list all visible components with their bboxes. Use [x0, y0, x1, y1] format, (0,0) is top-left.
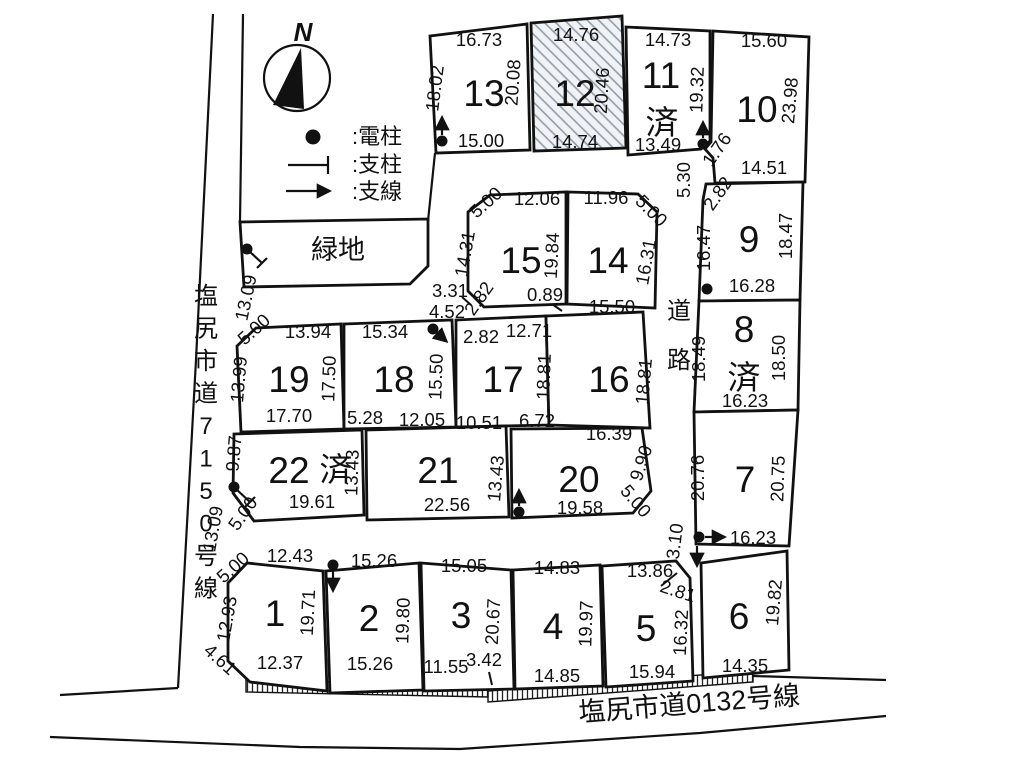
- lot-17-dim-bottom: 10.51: [456, 412, 502, 433]
- lot-3-dim-bottom: 11.55: [424, 656, 469, 677]
- lot-21-dim-right: 13.43: [483, 454, 508, 502]
- lot-17-dim-right: 18.81: [532, 353, 555, 400]
- lot-18-number: 18: [373, 359, 414, 400]
- legend-pole-icon: [306, 130, 321, 145]
- lot-1-dim-bottom: 12.37: [257, 652, 303, 673]
- lot-11-dim-right: 19.32: [685, 66, 708, 113]
- lot-11-dim-top: 14.73: [645, 29, 691, 50]
- road-dim-452: 4.52: [429, 301, 465, 322]
- lot-1-dim-top: 12.43: [267, 545, 313, 566]
- lot-4-dim-bottom: 14.85: [534, 665, 580, 686]
- lot-19-dim-top: 13.94: [285, 321, 331, 342]
- lot-17-dim-bottom2: 6.72: [519, 410, 555, 431]
- bottom-road-bottom-edge: [50, 716, 886, 749]
- lot-14-number: 14: [587, 240, 628, 281]
- pole-icon-lot21: [514, 507, 525, 518]
- legend-strut-label: :支柱: [352, 152, 402, 177]
- lot-17-dim-top: 12.71: [506, 320, 552, 341]
- lot-19-dim-left: 13.99: [226, 355, 251, 403]
- lot-4-number: 4: [543, 606, 564, 647]
- lot-18-dim-right: 15.50: [424, 353, 447, 400]
- lot-12-dim-bottom: 14.74: [552, 131, 598, 152]
- lot-12-dim-top: 14.76: [553, 24, 599, 45]
- pole-icon-lot7: [694, 532, 705, 543]
- lot-2-number: 2: [359, 598, 380, 639]
- lot-7-dim-left: 20.76: [687, 455, 708, 501]
- lot-18-dim-top: 15.34: [362, 321, 408, 342]
- road-dim-331: 3.31: [432, 280, 468, 301]
- bottom-road-top-edge-left: [60, 688, 178, 695]
- lot-13-dim-right: 20.08: [500, 59, 524, 107]
- legend: :電柱 :支柱 :支線: [286, 124, 402, 204]
- lot-21-dim-bottom: 22.56: [424, 494, 470, 515]
- lot-10-dim-right: 23.98: [777, 76, 802, 124]
- lot-19-dim-bottom: 17.70: [266, 405, 312, 426]
- lot-15-dim-right: 19.84: [540, 232, 563, 279]
- lot-4-dim-right: 19.97: [574, 600, 597, 647]
- lot-5-dim-right: 16.32: [669, 609, 692, 656]
- lot-22-dim-bottom: 19.61: [289, 491, 335, 512]
- plot-map-svg: N :電柱 :支柱 :支線: [0, 0, 1024, 768]
- lot-20-number: 20: [558, 459, 599, 500]
- lot-22-dim-left: 9.87: [221, 435, 245, 473]
- lot-15-dim-top: 12.06: [514, 188, 560, 209]
- lot-22-dim-right: 13.43: [340, 449, 363, 496]
- lot-17-number: 17: [482, 359, 523, 400]
- lot-9-dim-left: 16.47: [693, 225, 714, 271]
- pole-icon-lot9: [702, 284, 713, 295]
- compass-north-label: N: [294, 17, 314, 47]
- lot-3-dim-top: 15.05: [441, 555, 487, 576]
- legend-wire-label: :支線: [352, 179, 402, 204]
- lot-2-dim-right: 19.80: [391, 597, 414, 644]
- lot-13-dim-bottom: 15.00: [458, 130, 504, 151]
- left-road-east-edge-upper: [240, 14, 243, 222]
- lot-6-number: 6: [729, 596, 750, 637]
- lot-3-number: 3: [451, 595, 472, 636]
- lot-19-dim-right: 17.50: [317, 355, 340, 402]
- lot-21-number: 21: [417, 450, 458, 491]
- lot-16-number: 16: [588, 359, 629, 400]
- lot-16-dim-bottom: 16.39: [586, 423, 632, 444]
- lot-19-number: 19: [268, 359, 309, 400]
- lot-8-dim-left: 18.49: [688, 336, 709, 382]
- lot-5-dim-bottom: 15.94: [629, 661, 675, 682]
- lot-20-dim-bottom: 19.58: [557, 497, 603, 518]
- green-space-label: 緑地: [311, 235, 365, 265]
- corridor-west-edge: [428, 153, 435, 221]
- lot-6-dim-right: 19.82: [761, 578, 786, 626]
- lot-8-dim-right: 18.50: [768, 335, 789, 381]
- lot-10-dim-top: 15.60: [741, 30, 787, 51]
- lot-13-dim-top: 16.73: [456, 29, 502, 50]
- lot-5-number: 5: [636, 608, 657, 649]
- lot-14-dim-top: 11.96: [584, 187, 629, 208]
- lot-7-dim-frontage: 16.23: [730, 527, 776, 548]
- lot-9-dim-bottom: 16.28: [729, 275, 775, 296]
- lot-22-number: 22: [268, 450, 309, 491]
- lot-9-number: 9: [739, 219, 760, 260]
- legend-pole-label: :電柱: [352, 124, 402, 149]
- lot-1-dim-right: 19.71: [296, 589, 319, 636]
- lot-12-dim-right: 20.46: [590, 67, 613, 114]
- lot-11-dim-bottom: 13.49: [635, 134, 681, 155]
- lot-9-dim-right: 18.47: [775, 213, 796, 259]
- lot-8-number: 8: [734, 309, 755, 350]
- subdivision-plan: N :電柱 :支柱 :支線: [0, 0, 1024, 768]
- lot-10-number: 10: [736, 89, 777, 130]
- lot-8-dim-bottom: 16.23: [722, 390, 768, 411]
- road-dim-530: 5.30: [673, 162, 694, 198]
- road-dim-310: 3.10: [662, 522, 687, 560]
- lot-13-number: 13: [463, 73, 504, 114]
- lot-11-number: 11: [642, 55, 680, 96]
- lot-15-dim-step: 0.89: [527, 284, 563, 305]
- lot-3-dim-right: 20.67: [481, 598, 504, 645]
- lot-18-dim-bottom: 5.28: [347, 407, 383, 428]
- lot-14-dim-bottom: 15.50: [589, 296, 635, 317]
- lot-2-dim-top: 15.26: [351, 550, 397, 571]
- lot-6-dim-bottom: 14.35: [722, 655, 768, 676]
- lot-10-dim-bottom: 14.51: [741, 157, 787, 178]
- left-road-name: 塩尻市道7150号線: [194, 283, 218, 603]
- compass: N: [264, 17, 330, 111]
- pole-icon-lot2: [328, 560, 339, 571]
- lot-7-number: 7: [735, 459, 756, 500]
- bottom-road-top-edge-right: [753, 676, 886, 680]
- lot-1-number: 1: [265, 593, 286, 634]
- lot-4-dim-top: 14.83: [534, 557, 580, 578]
- lot-2-dim-bottom: 15.26: [347, 653, 393, 674]
- lot-7-dim-right: 20.75: [766, 455, 789, 502]
- lot-18-dim-bottom2: 12.05: [399, 409, 445, 430]
- road-dim-282-wire: 2.82: [463, 326, 499, 347]
- pole-icon-lot13: [437, 136, 448, 147]
- compass-needle: [273, 48, 304, 109]
- lot-16-dim-right: 18.81: [631, 357, 656, 405]
- lot-3-dim-bottom-right: 3.42: [466, 649, 502, 670]
- lot-15-number: 15: [500, 240, 541, 281]
